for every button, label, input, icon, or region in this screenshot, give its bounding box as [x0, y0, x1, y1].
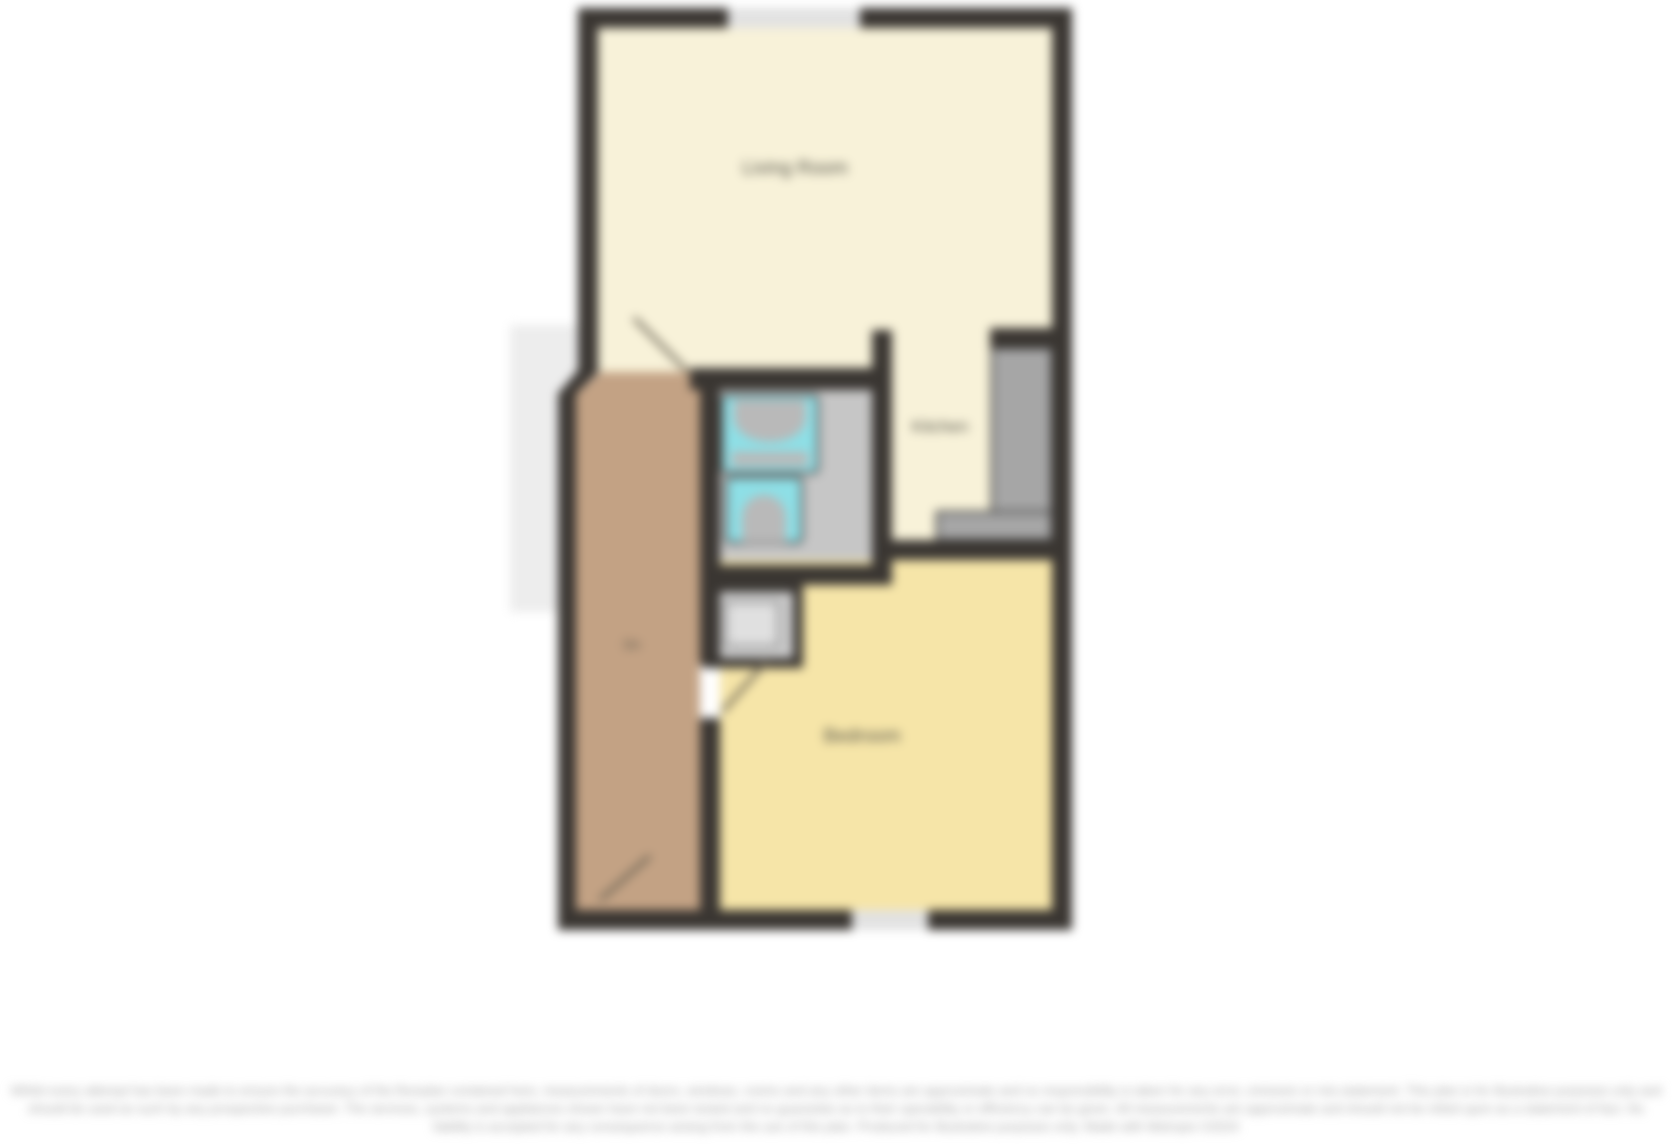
floorplan-drawing: Living Room Kitchen Bedroom Dn: [0, 0, 1672, 1080]
wall-hallway-lower: [700, 718, 720, 910]
wall-bathroom-top: [690, 368, 892, 390]
window-bottom: [852, 910, 928, 930]
storage-cupboard: [708, 587, 798, 663]
wall-top-left: [580, 8, 728, 28]
living-room-floor: [598, 28, 1052, 380]
bath-fixture: [722, 395, 818, 473]
wall-bathroom-bedroom: [700, 565, 892, 585]
bedroom-label: Bedroom: [823, 726, 900, 747]
bath-end-shape: [732, 452, 808, 466]
wall-right: [1052, 8, 1072, 930]
toilet-fixture: [726, 477, 802, 543]
kitchen-label: Kitchen: [912, 417, 969, 436]
living-room-label: Living Room: [742, 158, 848, 179]
window-top: [728, 8, 860, 28]
wall-hallway-upper: [700, 370, 720, 665]
wall-bottom-right: [928, 910, 1072, 930]
stairs-label: Dn: [624, 637, 641, 652]
wall-kitchen-top: [990, 328, 1072, 348]
wall-kitchen-bedroom: [872, 540, 1072, 560]
wall-left-lower: [558, 392, 576, 930]
kitchen-counter-bottom: [937, 512, 1052, 540]
wall-left-upper: [578, 8, 598, 370]
blurred-floorplan-image: Living Room Kitchen Bedroom Dn Whilst ev…: [0, 0, 1672, 1144]
wall-bottom-left: [558, 910, 852, 930]
disclaimer-text: Whilst every attempt has been made to en…: [0, 1082, 1672, 1136]
cupboard-shelf: [726, 602, 778, 646]
wall-top-right: [860, 8, 1072, 28]
toilet-bowl-shape: [742, 495, 786, 543]
